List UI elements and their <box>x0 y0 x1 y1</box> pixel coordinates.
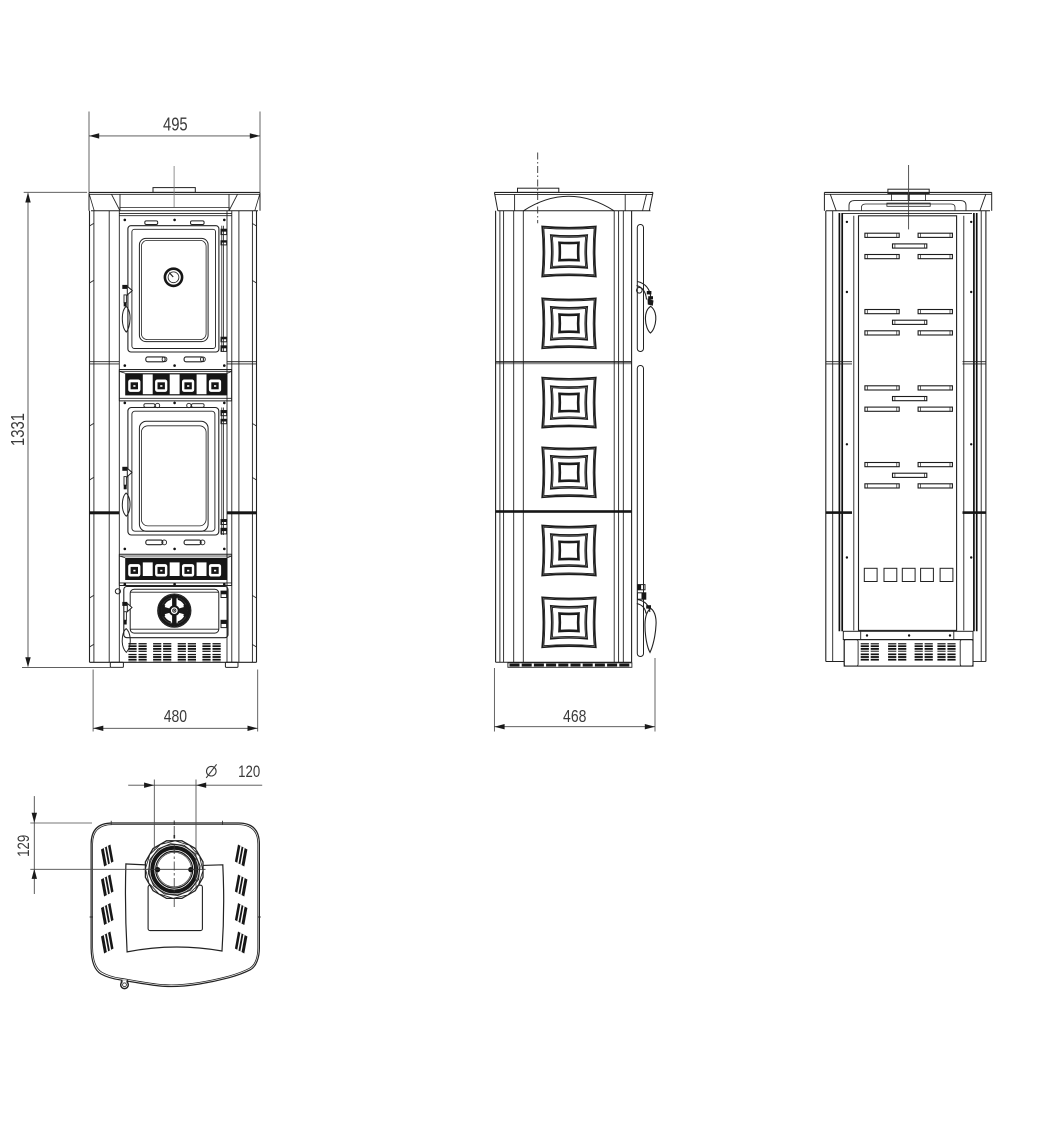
svg-text:480: 480 <box>164 708 188 727</box>
svg-text:495: 495 <box>163 114 188 135</box>
svg-text:468: 468 <box>563 708 587 727</box>
svg-text:1331: 1331 <box>8 413 29 446</box>
svg-text:129: 129 <box>15 835 34 857</box>
svg-text:120: 120 <box>238 763 260 782</box>
